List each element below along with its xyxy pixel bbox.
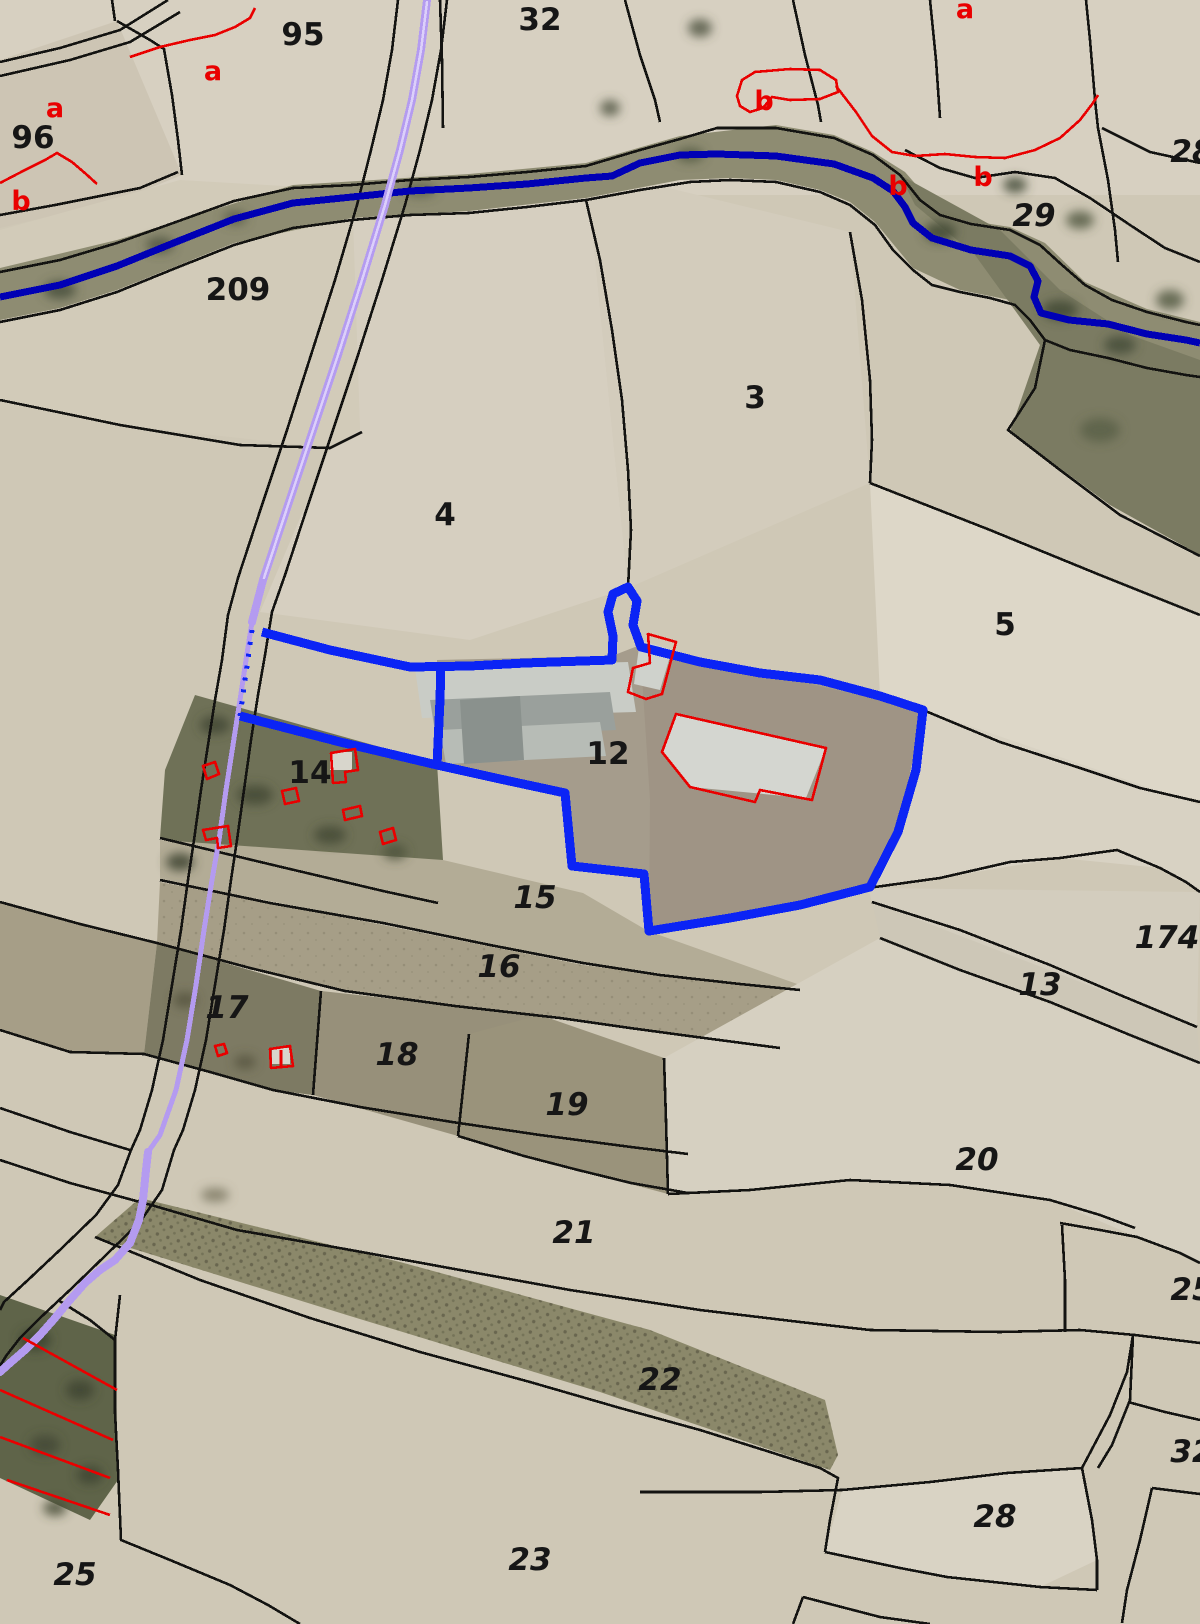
warehouse-building [460, 696, 524, 764]
parcel-number-label: 5 [994, 607, 1016, 643]
map-viewport[interactable]: 9532962093451214151617181913174202122232… [0, 0, 1200, 1624]
subparcel-letter-label: b [973, 162, 992, 193]
parcel-number-label: 17 [205, 990, 249, 1026]
parcel-number-label: 29 [1012, 198, 1055, 234]
parcel-number-label: 209 [206, 272, 271, 308]
subparcel-letter-label: a [956, 0, 974, 25]
parcel-number-label: 28 [973, 1499, 1016, 1535]
subparcel-letter-label: b [11, 186, 30, 217]
parcel-number-label: 16 [477, 949, 520, 985]
parcel-number-label: 15 [513, 880, 556, 916]
parcel-number-label: 14 [288, 755, 331, 791]
parcel-number-label: 4 [434, 497, 456, 533]
subparcel-letter-label: b [888, 171, 907, 202]
parcel-number-label: 32 [1170, 1434, 1200, 1470]
parcel-number-label: 25 [1170, 1272, 1200, 1308]
parcel-number-label: 19 [545, 1087, 588, 1123]
parcel-number-label: 23 [508, 1542, 551, 1578]
subparcel-letter-label: b [754, 86, 773, 117]
parcel-number-label: 22 [638, 1362, 681, 1398]
parcel-number-label: 32 [518, 2, 561, 38]
parcel-number-label: 96 [11, 120, 54, 156]
parcel-number-label: 21 [552, 1215, 595, 1251]
parcel-number-label: 174 [1135, 920, 1200, 956]
parcel-number-label: 95 [281, 17, 324, 53]
parcel-number-label: 13 [1018, 967, 1061, 1003]
parcel-number-label: 18 [375, 1037, 418, 1073]
parcel-number-label: 25 [53, 1557, 96, 1593]
cadastral-map[interactable]: 9532962093451214151617181913174202122232… [0, 0, 1200, 1624]
parcel-number-label: 12 [586, 736, 629, 772]
parcel-number-label: 3 [744, 380, 766, 416]
subparcel-letter-label: a [204, 56, 222, 87]
parcel-number-label: 20 [955, 1142, 998, 1178]
subparcel-letter-label: a [46, 93, 64, 124]
small-building [330, 752, 352, 770]
parcel-number-label: 28 [1170, 134, 1200, 170]
